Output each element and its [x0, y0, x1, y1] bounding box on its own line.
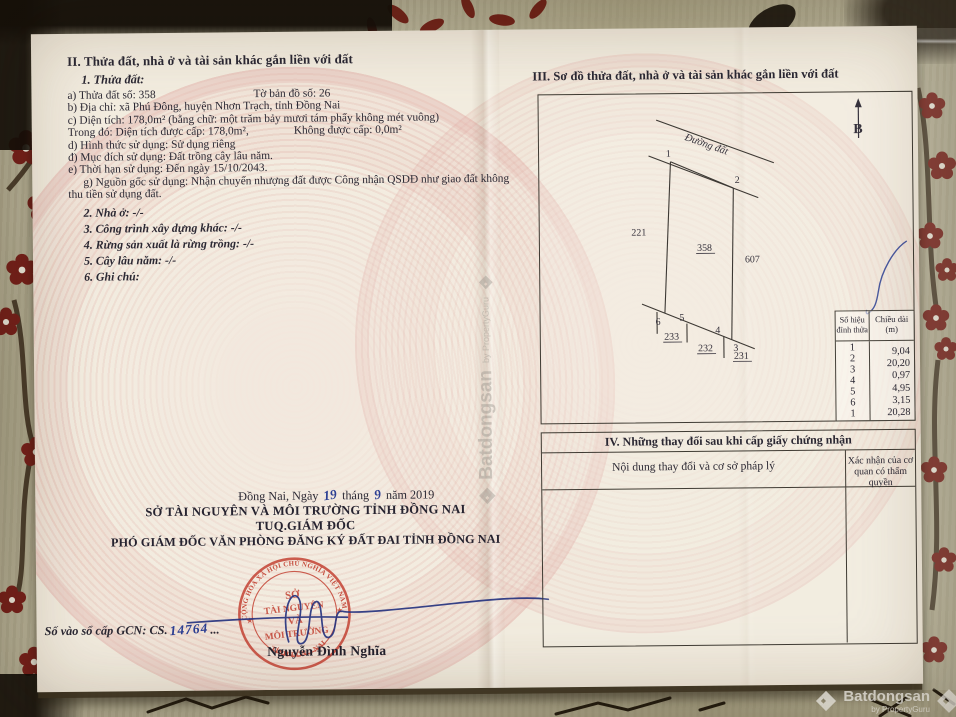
- gcn-trailing-dots: ...: [210, 622, 219, 636]
- org-line-3: PHÓ GIÁM ĐỐC VĂN PHÒNG ĐĂNG KÝ ĐẤT ĐAI T…: [66, 532, 546, 552]
- north-label: B: [853, 122, 862, 137]
- item-perennial: 5. Cây lâu năm: -/-: [84, 250, 516, 268]
- handwritten-month: 9: [373, 487, 382, 504]
- road-label: Đường đất: [682, 132, 730, 158]
- vertex-6-label: 6: [656, 317, 661, 328]
- change-content-header: Nội dung thay đổi và cơ sở pháp lý: [542, 450, 846, 489]
- gcn-number-handwritten: 14764: [169, 620, 209, 639]
- parcel-232-label: 232: [698, 343, 713, 354]
- map-sheet-number: Tờ bản đồ số: 26: [253, 87, 330, 100]
- signer-name: Nguyễn Đình Nghĩa: [177, 642, 477, 661]
- gcn-label: Số vào sổ cấp GCN: CS.: [45, 623, 168, 638]
- granted-area: Trong đó: Diện tích được cấp: 178,0m²,: [68, 125, 294, 140]
- place-label: Đồng Nai, Ngày: [238, 489, 318, 504]
- length-col-header: Chiều dài(m): [870, 311, 914, 340]
- photo-stage: II. Thửa đất, nhà ở và tài sản khác gắn …: [0, 0, 956, 717]
- vertex-numbers: 1 2 3 4 5 6 1: [836, 341, 871, 420]
- ungranted-area: Không được cấp: 0,0m²: [294, 124, 402, 137]
- year-label: năm 2019: [386, 487, 435, 501]
- north-arrow-icon: B: [853, 98, 863, 138]
- vertex-4-label: 4: [715, 325, 720, 336]
- vertex-table-header: Số hiệuđỉnh thửa Chiều dài(m): [836, 311, 914, 342]
- vertex-1-label: 1: [666, 149, 671, 160]
- section-4-changes-box: IV. Những thay đổi sau khi cấp giấy chứn…: [541, 429, 918, 648]
- vertex-col-header: Số hiệuđỉnh thửa: [836, 311, 870, 340]
- batdongsan-logo-icon: [936, 688, 956, 714]
- item-forest: 4. Rừng sản xuất là rừng trồng: -/-: [84, 234, 516, 252]
- month-label: tháng: [342, 488, 369, 502]
- parcel-subheading: 1. Thửa đất:: [81, 69, 514, 88]
- vertex-5-label: 5: [679, 313, 684, 324]
- handwritten-day: 19: [322, 487, 338, 505]
- signature-block: Đồng Nai, Ngày 19 tháng 9 năm 2019 SỞ TÀ…: [65, 485, 546, 551]
- parcel-358-label: 358: [697, 243, 712, 254]
- batdongsan-logo-icon: [815, 690, 837, 712]
- section-4-header-row: Nội dung thay đổi và cơ sở pháp lý Xác n…: [542, 450, 915, 491]
- authority-confirm-header: Xác nhận của cơ quan có thẩm quyền: [846, 450, 915, 487]
- blue-pen-mark: [866, 241, 908, 314]
- vertex-table-body: 1 2 3 4 5 6 1 9,04 20,20 0,97 4,95 3,15: [836, 341, 915, 421]
- parcel-221-label: 221: [631, 228, 646, 239]
- gcn-registry-line: Số vào sổ cấp GCN: CS.14764...: [45, 621, 220, 639]
- section-3-heading: III. Sơ đồ thửa đất, nhà ở và tài sản kh…: [532, 66, 917, 85]
- vertex-2-label: 2: [735, 175, 740, 186]
- plot-diagram-box: 1 2 3 4 5 6 221 358 607 233 232 231: [537, 91, 915, 425]
- section-2-heading: II. Thửa đất, nhà ở và tài sản khác gắn …: [67, 50, 514, 70]
- item-house: 2. Nhà ở: -/-: [84, 201, 516, 219]
- item-construction: 3. Công trình xây dựng khác: -/-: [84, 217, 516, 235]
- item-notes: 6. Ghi chú:: [84, 266, 516, 284]
- certificate-paper: II. Thửa đất, nhà ở và tài sản khác gắn …: [31, 26, 923, 692]
- parcel-233-label: 233: [664, 332, 679, 343]
- watermark-bottom-right: Batdongsan by PropertyGuru: [815, 688, 956, 714]
- section-2-land-info: II. Thửa đất, nhà ở và tài sản khác gắn …: [67, 50, 516, 285]
- parcel-231-label: 231: [734, 351, 749, 362]
- vertex-table: Số hiệuđỉnh thửa Chiều dài(m) 1 2 3 4 5 …: [835, 310, 916, 422]
- parcel-607-label: 607: [745, 254, 760, 265]
- watermark-center: Batdongsan by PropertyGuru: [474, 275, 498, 505]
- edge-lengths: 9,04 20,20 0,97 4,95 3,15 20,28: [870, 341, 915, 420]
- origin-line: g) Nguồn gốc sử dụng: Nhận chuyển nhượng…: [68, 172, 515, 201]
- twig-decoration: [148, 690, 954, 716]
- section-4-empty-rows: [542, 487, 916, 646]
